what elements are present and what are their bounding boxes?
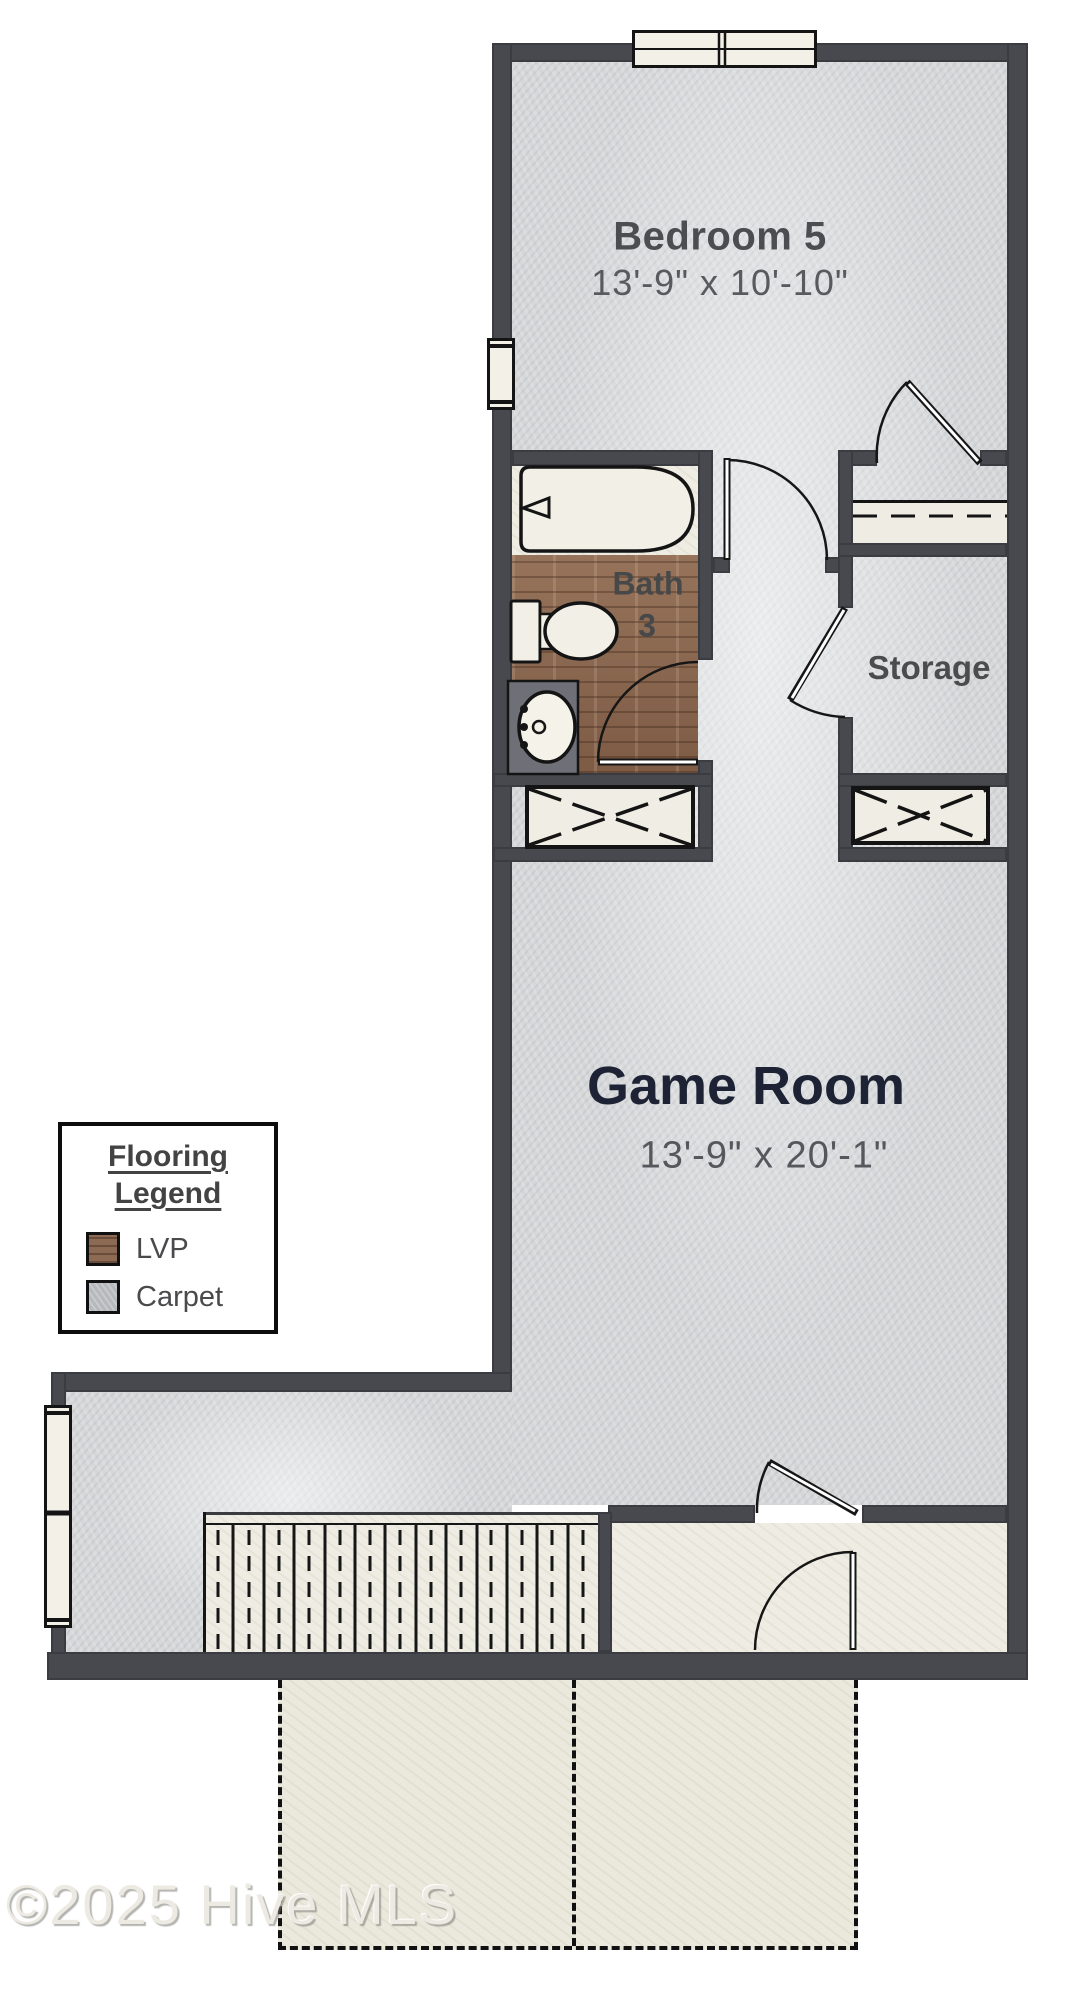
legend-swatch-lvp xyxy=(86,1232,120,1266)
exterior-bottom-wall xyxy=(47,1652,1028,1680)
bath3-title-line2: 3 xyxy=(638,608,656,645)
bath-tub-area-floor xyxy=(512,463,698,558)
right-closet-bottom-wall xyxy=(838,847,1007,862)
storage-left-wall-upper xyxy=(838,450,853,608)
floor-plan-page: Bedroom 5 13'-9" x 10'-10" Bath 3 Storag… xyxy=(0,0,1080,2000)
lower-level-dashed-divider xyxy=(572,1680,576,1946)
storage-bottom-wall xyxy=(838,773,1007,787)
stairs-floor xyxy=(203,1512,598,1652)
closet-storage-divider-wall xyxy=(838,543,1007,557)
legend-label-lvp: LVP xyxy=(136,1232,189,1266)
storage-left-wall-lower xyxy=(838,717,853,862)
flooring-legend: Flooring Legend LVP Carpet xyxy=(58,1122,278,1334)
legend-title-line2: Legend xyxy=(115,1177,222,1211)
gameroom-dimensions: 13'-9" x 20'-1" xyxy=(640,1135,889,1178)
landing-floor xyxy=(612,1523,1007,1652)
storage-title: Storage xyxy=(868,649,991,687)
landing-top-wall-right xyxy=(862,1505,1007,1523)
bath3-title-line1: Bath xyxy=(612,566,683,603)
stairs-landing-divider-wall xyxy=(598,1512,612,1652)
legend-label-carpet: Carpet xyxy=(136,1280,223,1314)
bath-right-wall-upper xyxy=(698,450,713,660)
bedroom-door-wall-stub-left xyxy=(713,557,730,573)
mls-watermark: ©2025 Hive MLS xyxy=(6,1872,458,1937)
gameroom-title: Game Room xyxy=(587,1055,905,1117)
bath-bottom-wall xyxy=(493,773,713,787)
closet-shelf xyxy=(853,500,1007,543)
left-closet-bottom-wall xyxy=(493,847,713,862)
gameroom-left-window xyxy=(44,1405,72,1628)
bedroom-top-window xyxy=(632,30,817,68)
bedroom5-title: Bedroom 5 xyxy=(613,215,826,260)
closet-top-wall-right-stub xyxy=(980,450,1007,466)
bath-top-wall xyxy=(512,450,713,466)
extension-top-wall xyxy=(51,1372,512,1392)
legend-swatch-carpet xyxy=(86,1280,120,1314)
bedroom5-dimensions: 13'-9" x 10'-10" xyxy=(591,262,848,304)
exterior-right-wall xyxy=(1007,43,1028,1680)
landing-top-wall-left xyxy=(608,1505,755,1523)
exterior-left-wall-upper xyxy=(492,43,512,1392)
legend-title-line1: Flooring xyxy=(108,1140,228,1174)
bedroom-left-window xyxy=(487,338,515,410)
